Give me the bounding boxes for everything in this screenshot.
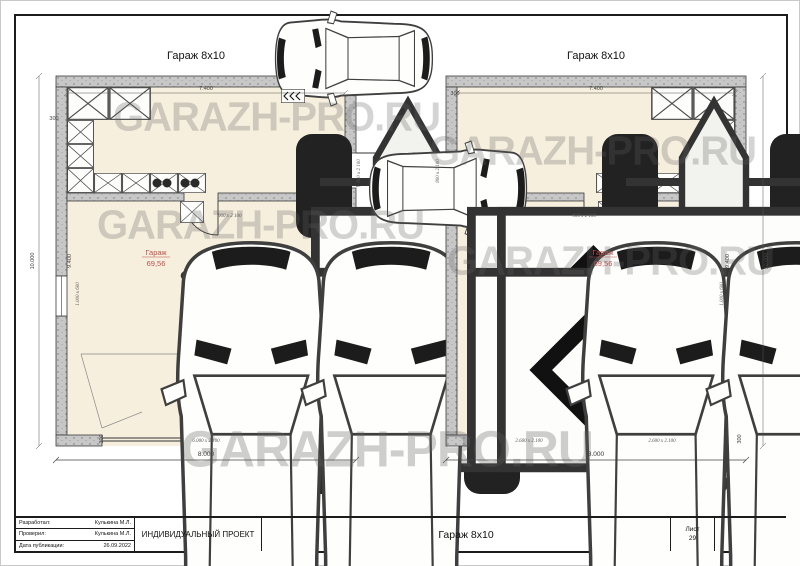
dim-height-inner-label: 9.400 — [67, 254, 73, 268]
credit-value: 26.09.2022 — [103, 543, 131, 549]
credit-row: Дата публикации: 26.09.2022 — [16, 541, 134, 551]
dim-gate-label: 6.000 x 2.100 — [192, 439, 220, 444]
room-area: 69,56 — [147, 259, 166, 268]
dim-gate-label: 2.600 x 2.100 — [648, 439, 676, 444]
credit-value: Кулькина М.Л. — [95, 520, 131, 526]
dim-pier-label: 300 — [99, 434, 105, 443]
dim-window-label: 1.000 x 600 — [720, 282, 725, 306]
dim-wall-thickness-label: 300 — [450, 91, 459, 97]
drawing-sheet: Разработал: Кулькина М.Л. Проверил: Куль… — [0, 0, 800, 566]
room-name: Гараж — [592, 248, 613, 257]
floor-plan-left-drawing: 7.400 300 10.000 9.400 1.000 x 600 800 x… — [31, 51, 381, 491]
dim-inner-door-label: 900 x 2 100 — [573, 214, 597, 219]
window — [56, 276, 67, 316]
dim-gate-label: 2.600 x 2.100 — [515, 439, 543, 444]
document-title-cell: Гараж 8x10 — [261, 518, 670, 551]
left-plan-title: Гараж 8x10 — [96, 50, 296, 62]
dim-height-inner-label: 9.400 — [725, 254, 731, 268]
sheet-number: 29 — [689, 535, 696, 543]
dim-bottom-total-label: 8.000 — [198, 451, 215, 458]
sheet-label: Лист — [685, 526, 699, 534]
title-block: Разработал: Кулькина М.Л. Проверил: Куль… — [16, 516, 786, 551]
dim-top-width-label: 7.400 — [199, 86, 213, 92]
room-name: Гараж — [145, 248, 166, 257]
dim-window-label: 1.000 x 600 — [76, 282, 81, 306]
title-block-credits: Разработал: Кулькина М.Л. Проверил: Куль… — [16, 518, 134, 551]
credit-row: Разработал: Кулькина М.Л. — [16, 518, 134, 529]
partition-wall — [67, 193, 184, 201]
sheet-number-cell: Лист 29 — [670, 518, 714, 551]
credit-value: Кулькина М.Л. — [95, 531, 131, 537]
empty-cell — [714, 518, 786, 551]
floor-plan-right: 7.400 300 10.000 9.400 1.000 x 600 800 x… — [421, 51, 771, 491]
project-type-cell: ИНДИВИДУАЛЬНЫЙ ПРОЕКТ — [134, 518, 261, 551]
floor-plan-left: 7.400 300 10.000 9.400 1.000 x 600 800 x… — [31, 51, 381, 491]
dim-side-door-label: 800 x 2 100 — [436, 159, 441, 183]
credit-label: Проверил: — [19, 531, 46, 537]
tire-rack — [281, 89, 304, 102]
credit-label: Дата публикации: — [19, 543, 64, 549]
dim-bottom-total-label: 8.000 — [588, 451, 605, 458]
dim-height-total-label: 10.000 — [764, 253, 770, 270]
dim-top-width-label: 7.400 — [589, 86, 603, 92]
dim-pier-label: 300 — [737, 434, 743, 443]
credit-label: Разработал: — [19, 520, 50, 526]
right-plan-title: Гараж 8x10 — [496, 50, 696, 62]
dim-inner-door-label: 900 x 2 100 — [218, 214, 242, 219]
floor-plan-right-drawing: 7.400 300 10.000 9.400 1.000 x 600 800 x… — [421, 51, 771, 491]
dim-height-total-label: 10.000 — [30, 253, 36, 270]
dim-wall-thickness-label: 300 — [49, 116, 58, 122]
room-area: 69,56 — [594, 259, 613, 268]
credit-row: Проверил: Кулькина М.Л. — [16, 529, 134, 540]
dim-side-door-label: 800 x 2 100 — [357, 159, 362, 183]
